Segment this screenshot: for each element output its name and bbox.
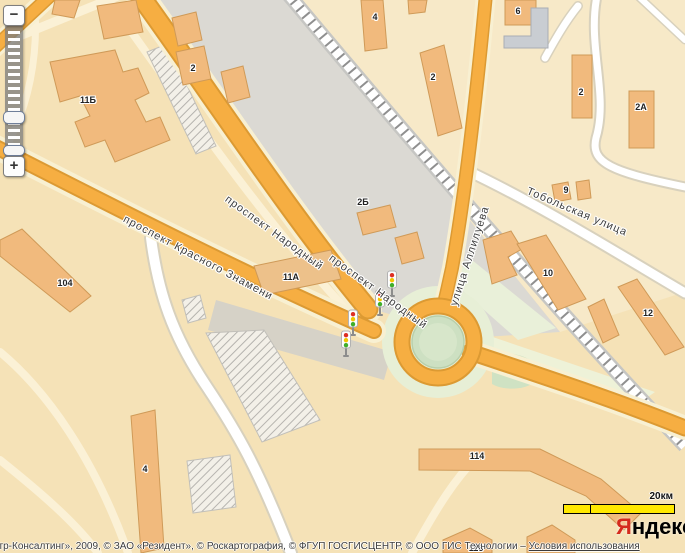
attribution-bar: нтр-Консалтинг», 2009, © ЗАО «Резидент»,… (0, 541, 685, 552)
yandex-logo-rest: ндекс (632, 514, 685, 539)
scale-bar-tick (590, 505, 591, 513)
map-canvas[interactable] (0, 0, 685, 553)
scale-bar (563, 504, 675, 514)
zoom-slider-endcap[interactable] (3, 145, 25, 156)
zoom-slider-track[interactable] (5, 19, 23, 165)
zoom-in-button[interactable]: + (3, 156, 25, 177)
yandex-logo-accent-letter: Я (616, 514, 632, 539)
zoom-out-button[interactable]: − (3, 5, 25, 26)
attribution-text: нтр-Консалтинг», 2009, © ЗАО «Резидент»,… (0, 541, 529, 552)
zoom-control: − + (3, 5, 25, 175)
zoom-slider-ticks (8, 27, 20, 157)
zoom-slider-handle[interactable] (3, 111, 25, 124)
roundabout (402, 306, 474, 378)
yandex-logo[interactable]: Яндекс (616, 514, 685, 540)
terms-of-use-link[interactable]: Условия использования (529, 541, 640, 552)
map-viewport[interactable]: проспект Народный проспект Народный прос… (0, 0, 685, 553)
scale-label: 20км (563, 491, 673, 502)
